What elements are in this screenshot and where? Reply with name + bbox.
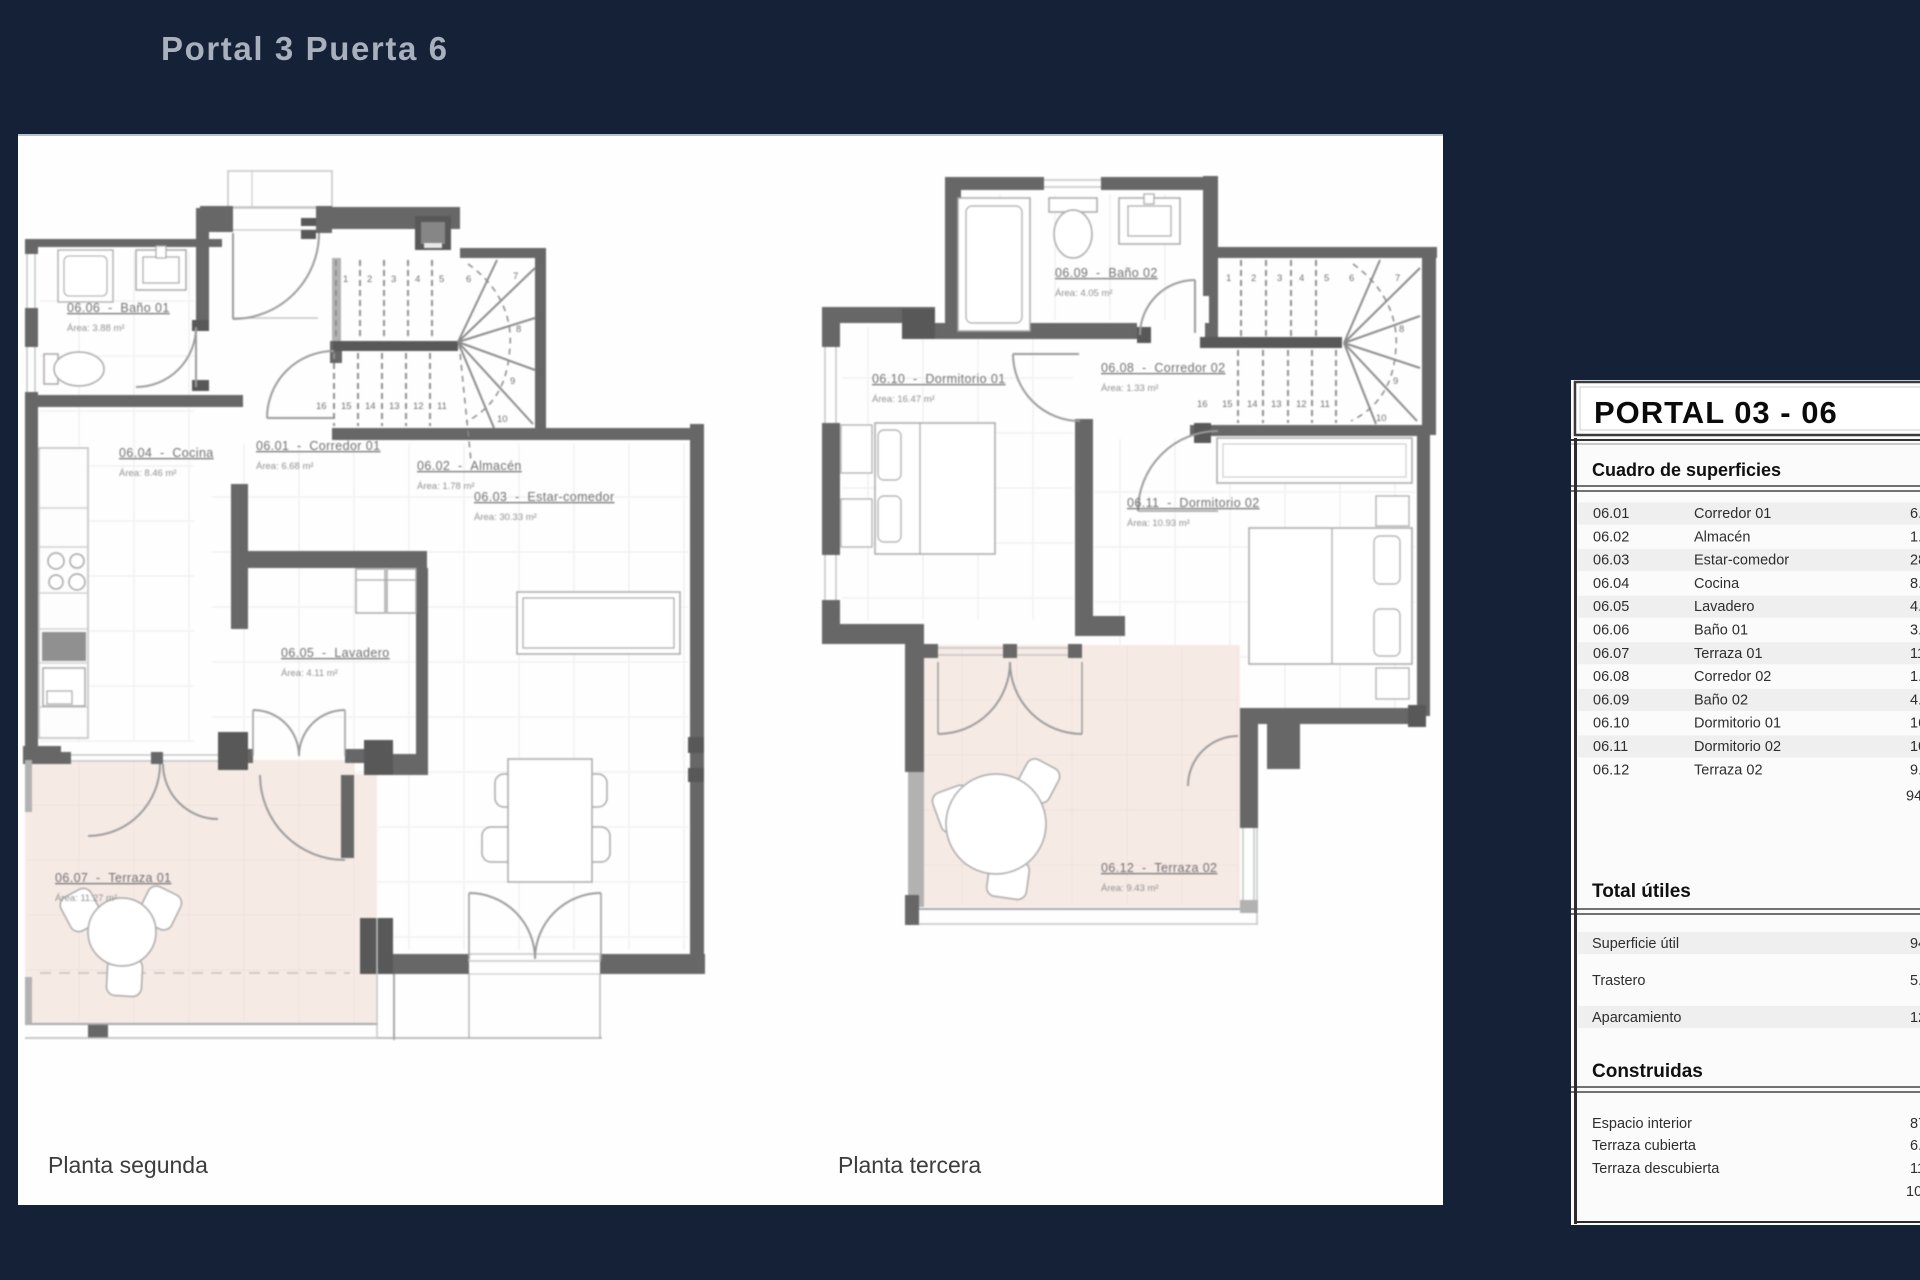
svg-text:Área: 1.78 m²: Área: 1.78 m² <box>417 481 475 492</box>
svg-text:Corredor 02: Corredor 02 <box>1694 669 1771 685</box>
svg-text:94.72: 94.72 <box>1906 789 1920 805</box>
svg-text:06.03 - Estar-comedor: 06.03 - Estar-comedor <box>474 490 615 504</box>
svg-text:06.08: 06.08 <box>1593 669 1629 685</box>
svg-text:5: 5 <box>1324 273 1329 284</box>
svg-text:06.10 - Dormitorio 01: 06.10 - Dormitorio 01 <box>872 372 1006 386</box>
svg-text:16.47: 16.47 <box>1910 716 1920 732</box>
svg-text:8.46: 8.46 <box>1910 576 1920 592</box>
svg-text:Estar-comedor: Estar-comedor <box>1694 553 1789 569</box>
svg-text:10.93: 10.93 <box>1910 739 1920 755</box>
svg-text:16: 16 <box>316 401 327 412</box>
svg-text:14: 14 <box>365 401 376 412</box>
svg-text:6.15: 6.15 <box>1910 1138 1920 1154</box>
svg-text:06.06 - Baño 01: 06.06 - Baño 01 <box>67 301 170 315</box>
svg-text:11.27: 11.27 <box>1910 1161 1920 1177</box>
svg-text:9.43: 9.43 <box>1910 762 1920 778</box>
svg-text:Área: 8.46 m²: Área: 8.46 m² <box>119 468 177 479</box>
svg-text:3: 3 <box>391 274 396 285</box>
svg-text:Área: 6.68 m²: Área: 6.68 m² <box>256 461 314 472</box>
svg-text:Área: 4.11 m²: Área: 4.11 m² <box>281 668 338 679</box>
svg-text:10: 10 <box>1376 413 1387 424</box>
svg-text:5.20: 5.20 <box>1910 973 1920 989</box>
svg-text:8: 8 <box>1399 324 1404 335</box>
svg-text:06.02: 06.02 <box>1593 529 1629 545</box>
svg-text:1: 1 <box>1226 273 1231 284</box>
svg-text:06.12 - Terraza 02: 06.12 - Terraza 02 <box>1101 861 1217 875</box>
svg-text:7: 7 <box>1395 273 1400 284</box>
svg-text:15: 15 <box>341 401 352 412</box>
svg-text:2: 2 <box>1251 273 1256 284</box>
svg-text:Área: 10.93 m²: Área: 10.93 m² <box>1127 518 1190 529</box>
svg-text:06.12: 06.12 <box>1593 762 1629 778</box>
svg-text:06.05 - Lavadero: 06.05 - Lavadero <box>281 646 390 660</box>
svg-text:Área: 11.27 m²: Área: 11.27 m² <box>55 893 117 904</box>
svg-text:3: 3 <box>1277 273 1282 284</box>
svg-text:06.11: 06.11 <box>1593 739 1628 755</box>
svg-text:Área: 3.88 m²: Área: 3.88 m² <box>67 323 125 334</box>
svg-text:16: 16 <box>1197 399 1208 410</box>
svg-text:11: 11 <box>437 401 447 412</box>
svg-text:1: 1 <box>343 274 348 285</box>
svg-text:Corredor 01: Corredor 01 <box>1694 506 1771 522</box>
svg-text:13: 13 <box>1271 399 1282 410</box>
svg-text:06.01 - Corredor 01: 06.01 - Corredor 01 <box>256 439 380 453</box>
svg-text:Dormitorio 01: Dormitorio 01 <box>1694 716 1781 732</box>
svg-text:14: 14 <box>1247 399 1258 410</box>
svg-text:5: 5 <box>439 274 444 285</box>
svg-text:Total útiles: Total útiles <box>1592 881 1691 902</box>
svg-text:Baño 02: Baño 02 <box>1694 692 1748 708</box>
svg-text:Lavadero: Lavadero <box>1694 599 1754 615</box>
svg-text:06.03: 06.03 <box>1593 553 1629 569</box>
svg-text:06.11 - Dormitorio 02: 06.11 - Dormitorio 02 <box>1127 496 1260 510</box>
svg-text:06.10: 06.10 <box>1593 716 1629 732</box>
svg-text:10: 10 <box>497 414 508 425</box>
svg-text:Terraza 02: Terraza 02 <box>1694 762 1763 778</box>
svg-text:94.72: 94.72 <box>1910 936 1920 952</box>
svg-text:Almacén: Almacén <box>1694 529 1750 545</box>
svg-text:Cocina: Cocina <box>1694 576 1740 592</box>
svg-text:06.07 - Terraza 01: 06.07 - Terraza 01 <box>55 871 171 885</box>
svg-text:11.27: 11.27 <box>1910 646 1920 662</box>
svg-text:Baño 01: Baño 01 <box>1694 623 1748 639</box>
svg-text:12: 12 <box>1296 399 1307 410</box>
svg-text:6.68: 6.68 <box>1910 506 1920 522</box>
svg-text:4.05: 4.05 <box>1910 692 1920 708</box>
svg-text:3.88: 3.88 <box>1910 623 1920 639</box>
svg-text:6: 6 <box>1349 273 1354 284</box>
svg-text:8: 8 <box>516 324 521 335</box>
svg-text:2: 2 <box>367 274 372 285</box>
svg-text:9: 9 <box>1393 376 1398 387</box>
svg-text:87.94: 87.94 <box>1910 1116 1920 1132</box>
svg-text:06.09 - Baño 02: 06.09 - Baño 02 <box>1055 266 1158 280</box>
svg-text:06.07: 06.07 <box>1593 646 1629 662</box>
svg-text:Área: 30.33 m²: Área: 30.33 m² <box>474 512 537 523</box>
svg-text:PORTAL 03 - 06: PORTAL 03 - 06 <box>1594 395 1838 430</box>
svg-text:06.02 - Almacén: 06.02 - Almacén <box>417 459 522 473</box>
svg-text:4.11: 4.11 <box>1910 599 1920 615</box>
svg-text:Dormitorio 02: Dormitorio 02 <box>1694 739 1781 755</box>
svg-text:12: 12 <box>413 401 424 412</box>
svg-text:13: 13 <box>389 401 400 412</box>
svg-text:4: 4 <box>415 274 420 285</box>
svg-text:06.05: 06.05 <box>1593 599 1629 615</box>
svg-text:1.78: 1.78 <box>1910 529 1920 545</box>
svg-text:06.01: 06.01 <box>1593 506 1629 522</box>
svg-text:6: 6 <box>466 274 471 285</box>
svg-text:Trastero: Trastero <box>1592 973 1645 989</box>
svg-text:Construidas: Construidas <box>1592 1061 1703 1082</box>
svg-text:06.09: 06.09 <box>1593 692 1629 708</box>
svg-text:Área: 16.47 m²: Área: 16.47 m² <box>872 394 935 405</box>
svg-text:11: 11 <box>1320 399 1330 410</box>
svg-text:Terraza cubierta: Terraza cubierta <box>1592 1138 1697 1154</box>
svg-text:06.08 - Corredor 02: 06.08 - Corredor 02 <box>1101 361 1225 375</box>
svg-text:Terraza 01: Terraza 01 <box>1694 646 1763 662</box>
svg-text:7: 7 <box>513 271 518 282</box>
svg-text:Superficie útil: Superficie útil <box>1592 936 1679 952</box>
svg-text:28.33: 28.33 <box>1910 553 1920 569</box>
svg-text:Terraza descubierta: Terraza descubierta <box>1592 1161 1720 1177</box>
svg-text:Aparcamiento: Aparcamiento <box>1592 1010 1681 1026</box>
svg-text:105.36: 105.36 <box>1906 1184 1920 1200</box>
svg-text:15: 15 <box>1222 399 1233 410</box>
svg-text:Espacio interior: Espacio interior <box>1592 1116 1692 1132</box>
svg-text:06.04: 06.04 <box>1593 576 1629 592</box>
svg-text:Área: 4.05 m²: Área: 4.05 m² <box>1055 288 1113 299</box>
svg-text:Área: 9.43 m²: Área: 9.43 m² <box>1101 883 1159 894</box>
svg-text:Cuadro de superficies: Cuadro de superficies <box>1592 460 1781 480</box>
svg-text:06.06: 06.06 <box>1593 623 1629 639</box>
svg-text:9: 9 <box>510 376 515 387</box>
svg-text:4: 4 <box>1299 273 1304 284</box>
svg-text:06.04 - Cocina: 06.04 - Cocina <box>119 446 214 460</box>
svg-text:1.33: 1.33 <box>1910 669 1920 685</box>
svg-text:Área: 1.33 m²: Área: 1.33 m² <box>1101 383 1159 394</box>
svg-text:12.50: 12.50 <box>1910 1010 1920 1026</box>
